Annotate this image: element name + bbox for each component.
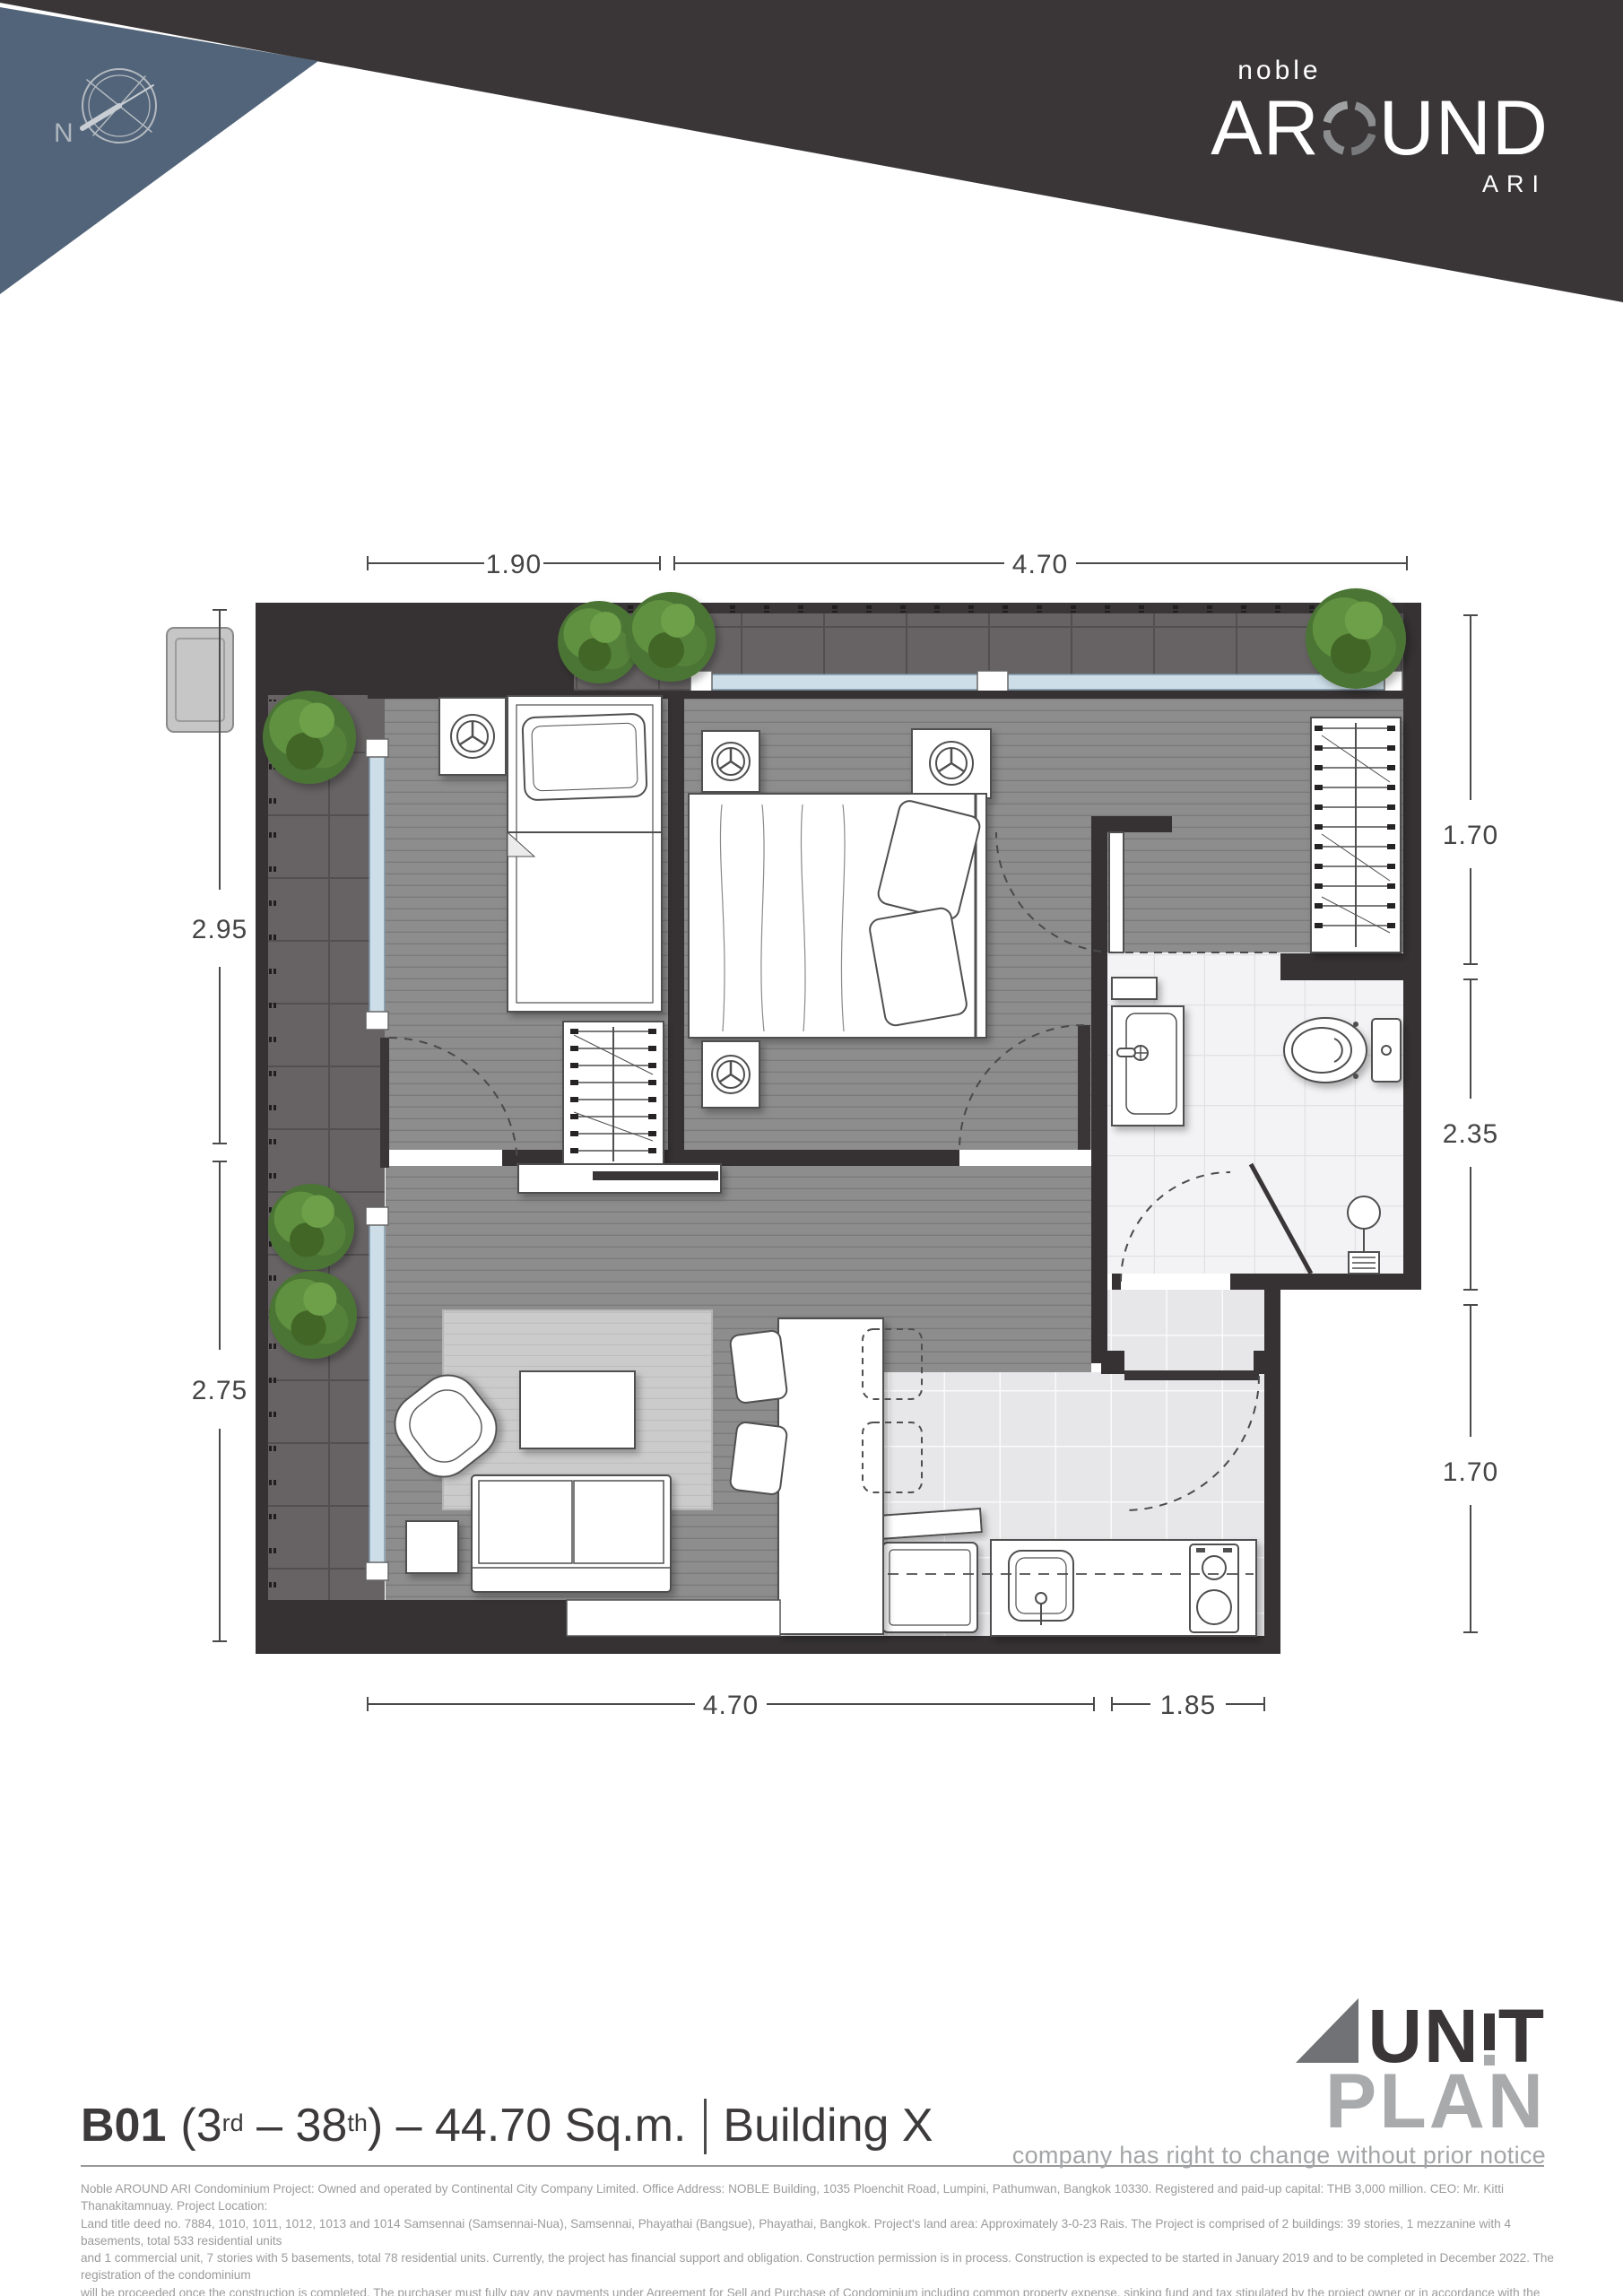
noble-around-logo: noble AR UND ARI [1211,56,1549,198]
dim-right-upper: 1.70 [1443,821,1498,850]
floor-plan-svg: N [0,0,1623,2296]
brand-noble: noble [1237,56,1549,86]
disclaimer-line: will be proceeded once the construction … [81,2284,1576,2296]
dining-table [778,1318,883,1634]
unitplan-tagline: company has right to change without prio… [1012,2142,1546,2170]
balcony-planter-box [567,1600,780,1636]
dining-chair-1 [730,1330,788,1404]
dim-left-lower: 2.75 [192,1376,247,1405]
unit-plan-logo: UN T PLAN company has right to change wi… [1012,1996,1546,2170]
unit-area: ) – 44.70 Sq.m. [368,2099,687,2152]
building-label: Building X [723,2099,933,2152]
stylized-o-icon [1324,99,1376,158]
unitplan-t: T [1498,2008,1546,2066]
master-lamp-icon-3 [712,1056,750,1093]
plant [263,691,356,784]
left-balcony-floor [268,695,385,1636]
master-door-leaf [1078,1025,1090,1150]
unit-floor-open: (3 [180,2099,221,2152]
master-lamp-icon-1 [712,743,750,780]
unit-floor-from-sup: rd [222,2096,244,2150]
bedroom2-door-leaf [380,1038,389,1168]
dim-right-middle: 2.35 [1443,1119,1498,1149]
entry-door-leaf [1124,1370,1259,1380]
side-table [406,1521,458,1573]
living-sliding-glass [369,1213,385,1568]
disclaimer-line: Noble AROUND ARI Condominium Project: Ow… [81,2180,1576,2215]
brand-ari: ARI [1211,170,1549,198]
bedroom2-sliding-glass [369,744,385,1017]
dim-left-upper: 2.95 [192,915,247,944]
unit-title-divider [704,2099,707,2154]
unit-title: B01(3rd – 38th) – 44.70 Sq.m. Building X [81,2099,933,2154]
plant [268,1184,354,1270]
dim-top-left: 1.90 [486,550,542,579]
brand-around: AR UND [1211,90,1549,167]
vanity-cabinet [1112,1006,1184,1126]
disclaimer: Noble AROUND ARI Condominium Project: Ow… [81,2180,1576,2296]
plant [626,592,716,682]
bathroom-door-leaf [1109,832,1124,952]
dim-bottom-right: 1.85 [1160,1691,1216,1720]
sofa [472,1475,671,1592]
brand-around-right: UND [1379,90,1549,167]
vanity-shelf [1112,978,1157,999]
dim-bottom-left: 4.70 [703,1691,759,1720]
bedroom2-lamp-icon [451,715,494,758]
left-railing [269,700,276,1632]
unit-plan-page: N [0,0,1623,2296]
plant [269,1271,357,1359]
plant [1306,588,1406,689]
brand-around-left: AR [1211,90,1319,167]
master-lamp-icon-2 [930,742,973,785]
unit-plan-triangle-icon [1296,1996,1358,2063]
unit-floor-mid: – 38 [244,2099,348,2152]
master-balcony-sliding-glass [699,674,1401,690]
dim-right-lower: 1.70 [1443,1457,1498,1487]
unit-floor-to-sup: th [347,2096,368,2150]
refrigerator [882,1543,977,1632]
unitplan-plan: PLAN [1012,2069,1546,2134]
disclaimer-line: and 1 commercial unit, 7 stories with 5 … [81,2249,1576,2284]
dim-top-right: 4.70 [1012,550,1068,579]
unit-code: B01 [81,2099,166,2152]
unitplan-un: UN [1367,2008,1480,2066]
ac-unit [167,628,233,732]
compass-north-label: N [54,118,74,148]
disclaimer-line: Land title deed no. 7884, 1010, 1011, 10… [81,2215,1576,2250]
coffee-table [520,1371,635,1448]
dining-chair-2 [730,1422,788,1495]
master-pillow-2 [868,907,968,1027]
tv [593,1171,718,1180]
